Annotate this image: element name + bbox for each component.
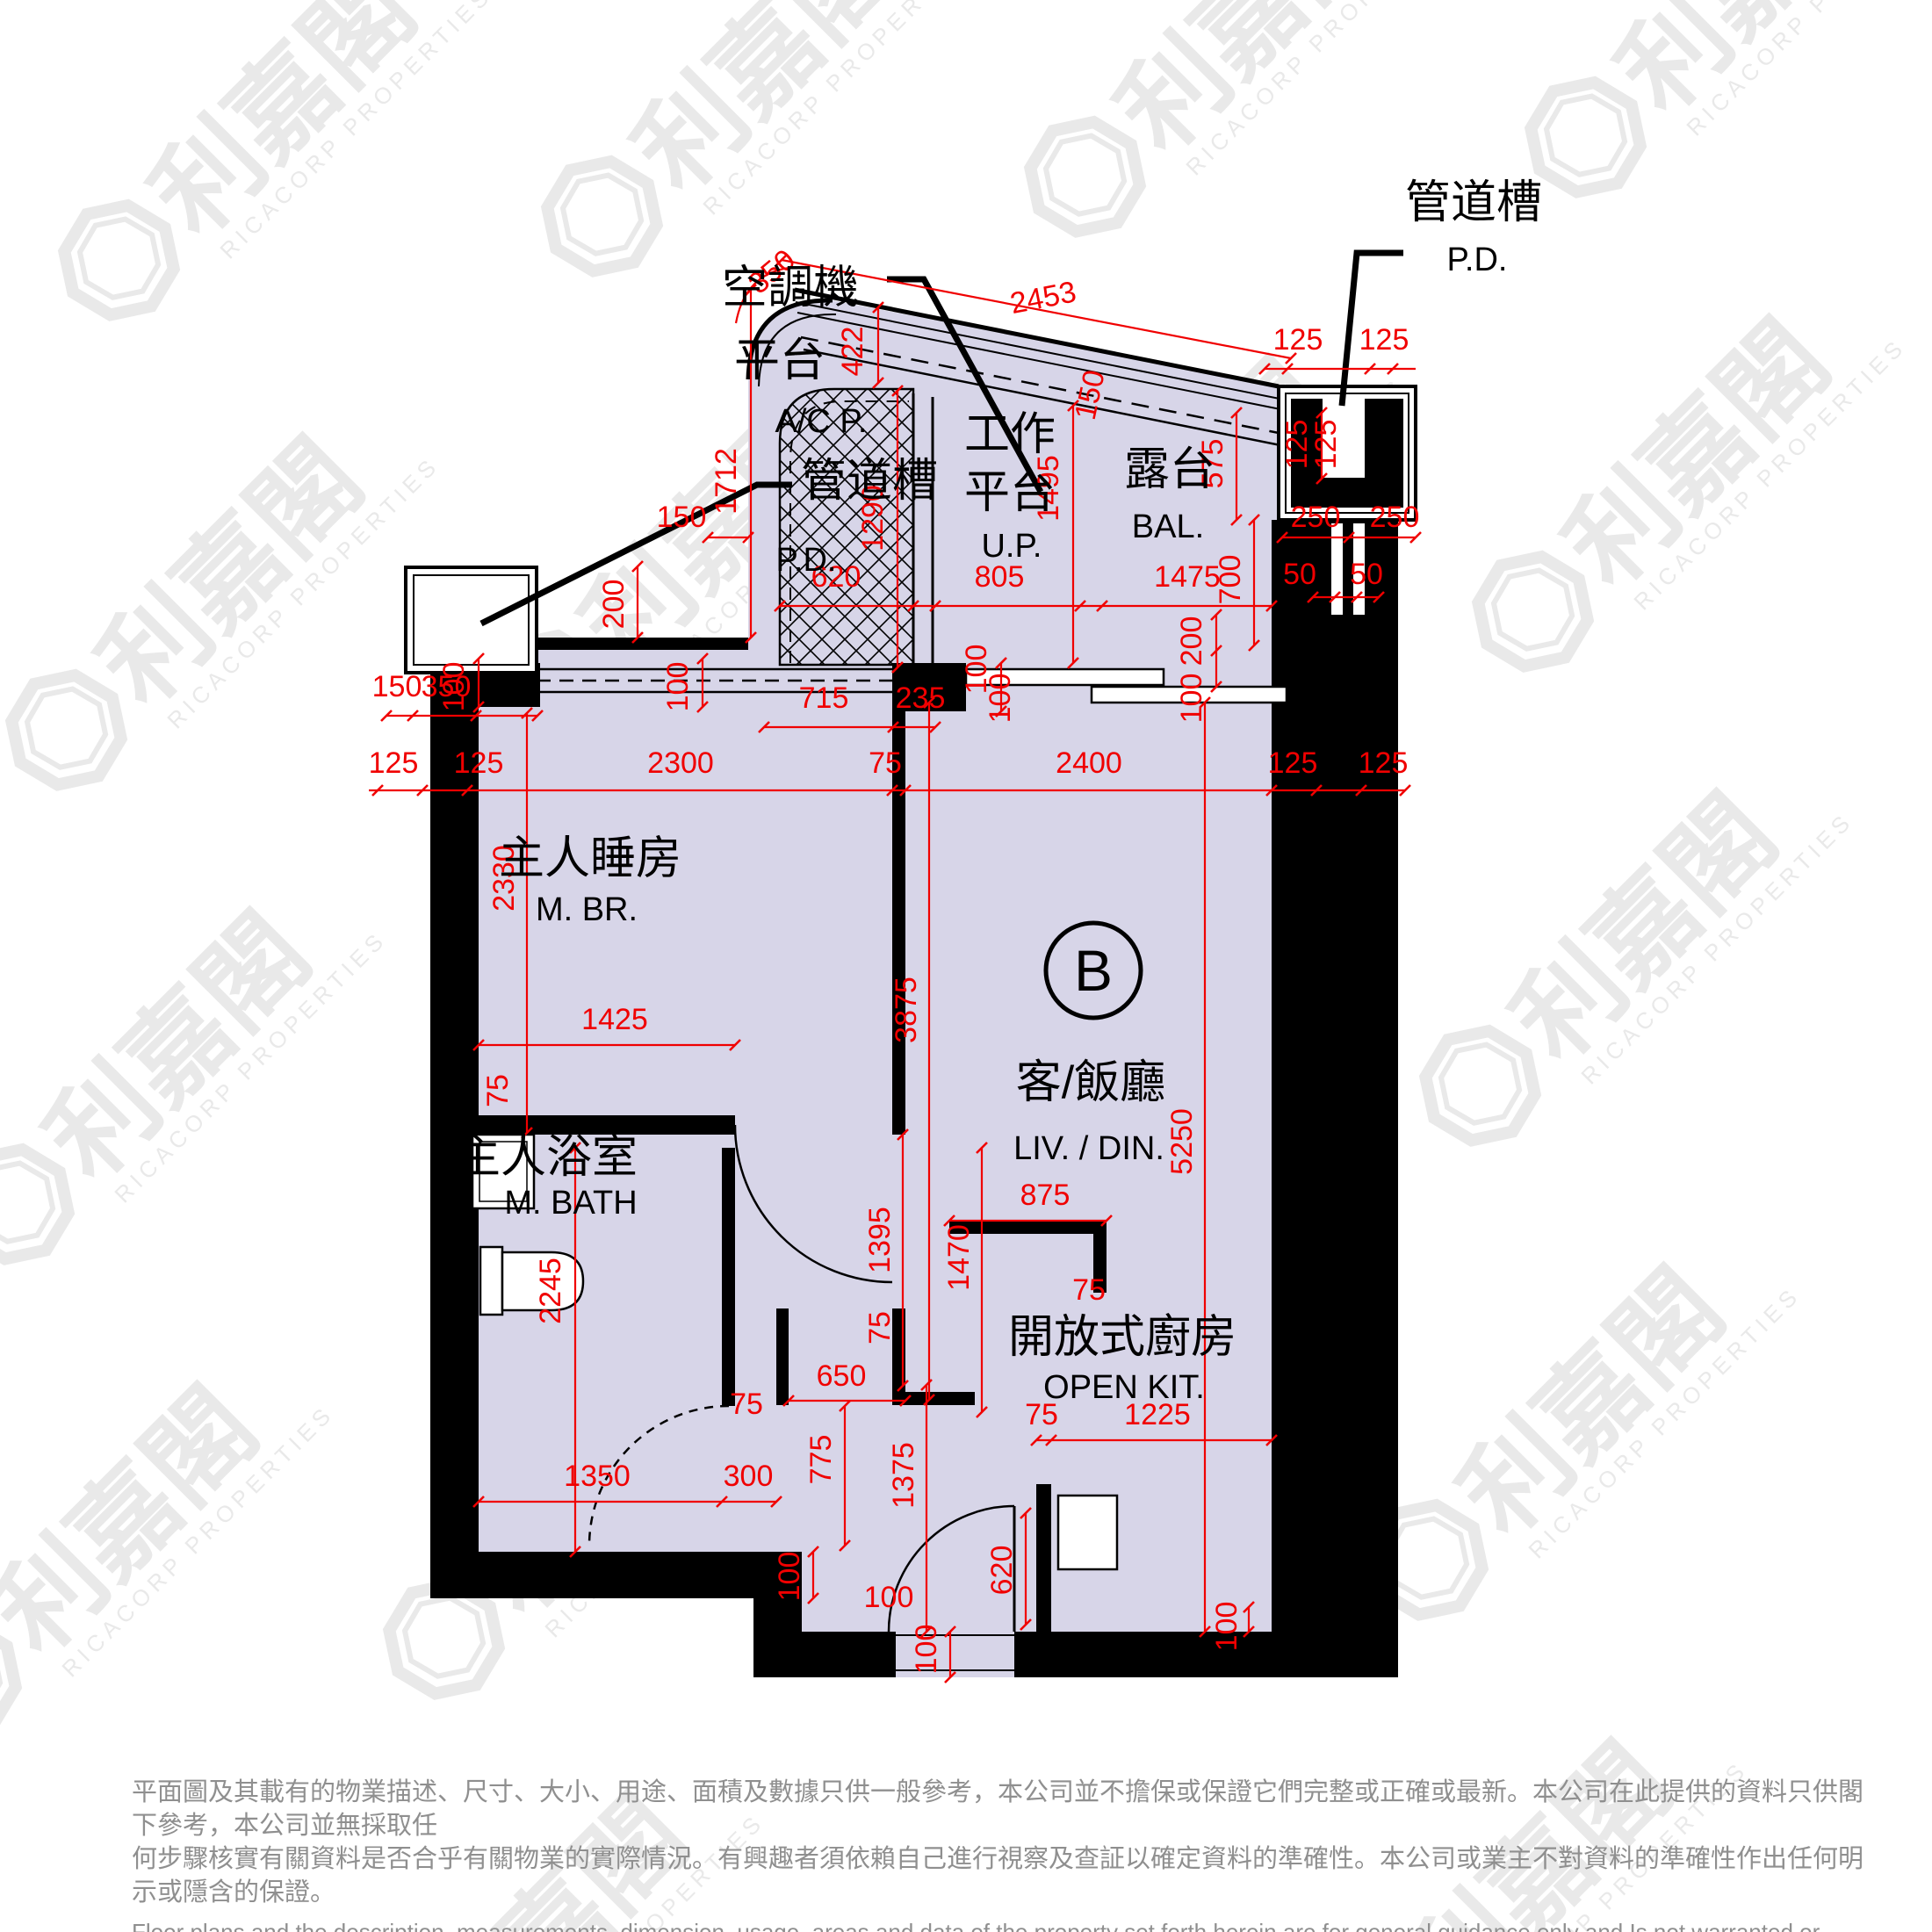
dimension-label: 775 bbox=[804, 1435, 838, 1485]
dimension-label: 2245 bbox=[534, 1258, 567, 1324]
master-bath-label-zh: 主人浴室 bbox=[455, 1132, 638, 1183]
dimension-label: 250 bbox=[1370, 501, 1420, 534]
floor-plan-svg: 利嘉閣 RICACORP PROPERTIES bbox=[0, 0, 1932, 1932]
unit-badge-label: B bbox=[1074, 938, 1113, 1003]
balcony-label-zh: 露台 bbox=[1124, 444, 1215, 495]
dimension-label: 2400 bbox=[1056, 746, 1122, 780]
dimension-label: 1475 bbox=[1154, 560, 1221, 594]
dimension-label: 250 bbox=[1291, 501, 1341, 534]
dimension-label: 1350 bbox=[564, 1460, 631, 1493]
dimension-label: 100 bbox=[661, 662, 695, 712]
dimension-label: 200 bbox=[597, 580, 631, 630]
kitchen-appliance bbox=[1058, 1496, 1117, 1569]
dimension-label: 50 bbox=[1350, 558, 1383, 591]
dimension-label: 75 bbox=[730, 1388, 763, 1421]
dimension-label: 100 bbox=[1175, 674, 1208, 724]
dimension-label: 300 bbox=[724, 1460, 774, 1493]
balcony-label-en: BAL. bbox=[1132, 508, 1204, 545]
dimension-label: 3875 bbox=[890, 977, 923, 1043]
dimension-label: 650 bbox=[817, 1359, 867, 1393]
dimension-label: 125 bbox=[369, 746, 419, 780]
disclaimer-zh-line1: 平面圖及其載有的物業描述、尺寸、大小、用途、面積及數據只供一般參考，本公司並不擔… bbox=[132, 1776, 1879, 1842]
dimension-label: 715 bbox=[799, 681, 849, 715]
dimension-label: 150 bbox=[657, 501, 707, 534]
dimension-label: 50 bbox=[1283, 558, 1316, 591]
pd-right-label-zh: 管道槽 bbox=[1405, 177, 1542, 228]
dimension-label: 422 bbox=[836, 327, 869, 377]
pd-right-label-en: P.D. bbox=[1446, 241, 1507, 278]
master-bath-label-en: M. BATH bbox=[504, 1185, 637, 1222]
disclaimer-zh-line2: 何步驟核實有關資料是否合乎有關物業的實際情況。有興趣者須依賴自己進行視察及查証以… bbox=[132, 1842, 1879, 1909]
master-bedroom-label-en: M. BR. bbox=[536, 891, 638, 928]
dimension-label: 125 bbox=[1273, 323, 1323, 357]
ac-platform-label-en: A/C P. bbox=[775, 403, 868, 440]
disclaimer: 平面圖及其載有的物業描述、尺寸、大小、用途、面積及數據只供一般參考，本公司並不擔… bbox=[132, 1776, 1879, 1932]
dimension-label: 75 bbox=[1072, 1273, 1106, 1307]
disclaimer-en-line1: Floor plans and the description, measure… bbox=[132, 1920, 1879, 1932]
open-kitchen-label-zh: 開放式廚房 bbox=[1008, 1312, 1236, 1363]
dimension-label: 2300 bbox=[647, 746, 714, 780]
dimension-label: 200 bbox=[1175, 616, 1208, 667]
dimension-label: 100 bbox=[864, 1581, 914, 1614]
dimension-label: 125 bbox=[1309, 420, 1343, 470]
dimension-label: 350 bbox=[422, 670, 472, 703]
up-label-zh2: 平台 bbox=[964, 467, 1056, 518]
living-dining-label-zh: 客/飯廳 bbox=[1016, 1057, 1165, 1108]
up-label-zh1: 工作 bbox=[964, 409, 1056, 460]
dimension-label: 125 bbox=[1359, 323, 1409, 357]
dimension-label: 620 bbox=[985, 1546, 1019, 1596]
dimension-label: 1395 bbox=[863, 1207, 897, 1273]
dimension-label: 125 bbox=[1268, 746, 1318, 780]
dimension-label: 1375 bbox=[887, 1442, 920, 1509]
living-dining-label-en: LIV. / DIN. bbox=[1013, 1130, 1164, 1167]
floor-plan-page: 利嘉閣 RICACORP PROPERTIES bbox=[0, 0, 1932, 1932]
dimension-label: 125 bbox=[454, 746, 504, 780]
dimension-label: 100 bbox=[984, 674, 1017, 724]
dimension-label: 75 bbox=[869, 746, 902, 780]
dimension-label: 150 bbox=[372, 670, 422, 703]
dimension-label: 1470 bbox=[942, 1224, 976, 1291]
dimension-label: 1425 bbox=[581, 1003, 648, 1036]
ac-platform-label-zh1: 空調機 bbox=[722, 263, 859, 314]
dimension-label: 5250 bbox=[1165, 1108, 1199, 1175]
pd-left-label-en: P.D. bbox=[775, 542, 836, 579]
dimension-label: 125 bbox=[1359, 746, 1409, 780]
up-label-en: U.P. bbox=[981, 528, 1042, 565]
pd-left-box bbox=[406, 567, 537, 673]
master-bedroom-label-zh: 主人睡房 bbox=[499, 833, 681, 884]
pd-left-label-zh: 管道槽 bbox=[801, 456, 938, 507]
dimension-label: 75 bbox=[481, 1074, 515, 1107]
dimension-label: 2453 bbox=[1007, 275, 1079, 321]
dimension-label: 100 bbox=[910, 1625, 943, 1675]
dimension-label: 235 bbox=[896, 681, 946, 715]
ac-platform-label-zh2: 平台 bbox=[734, 335, 825, 386]
dimension-label: 75 bbox=[863, 1311, 897, 1344]
dimension-label: 100 bbox=[773, 1552, 806, 1602]
dimension-label: 805 bbox=[975, 560, 1025, 594]
dimension-label: 100 bbox=[1210, 1602, 1244, 1652]
dimension-label: 875 bbox=[1020, 1179, 1071, 1212]
dimension-label: 1712 bbox=[710, 448, 743, 515]
open-kitchen-label-en: OPEN KIT. bbox=[1043, 1369, 1205, 1406]
